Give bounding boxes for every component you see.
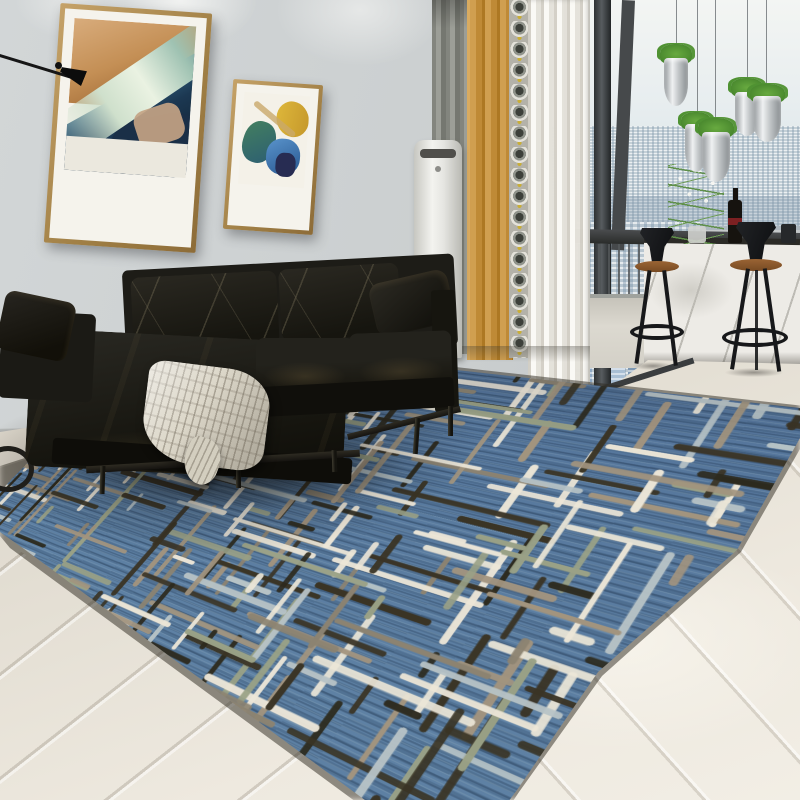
art-cream-band bbox=[64, 136, 188, 178]
wall-lamp-joint bbox=[55, 62, 62, 69]
sofa-leg bbox=[332, 450, 338, 472]
wall-art-small-print bbox=[238, 92, 310, 188]
sofa-leg bbox=[448, 406, 453, 436]
planter-cable bbox=[697, 0, 698, 126]
stool-footrest-ring bbox=[722, 328, 788, 347]
flower-vase bbox=[688, 226, 706, 243]
ac-logo bbox=[435, 166, 441, 172]
stool-leg bbox=[662, 270, 678, 366]
stool-leg bbox=[755, 270, 758, 370]
wall-art-large-print bbox=[64, 18, 196, 178]
stool-back bbox=[736, 222, 776, 262]
wall-art-small-mat bbox=[227, 83, 319, 230]
planter-cable bbox=[715, 0, 716, 132]
ac-vent bbox=[420, 149, 456, 158]
curtain-sheer bbox=[528, 0, 590, 392]
stool-seat bbox=[635, 261, 679, 272]
curtain-mustard bbox=[467, 0, 513, 360]
hanging-planter bbox=[753, 96, 781, 142]
hanging-planter bbox=[702, 132, 730, 182]
stool-leg bbox=[763, 268, 781, 372]
bar-stool-right bbox=[712, 222, 800, 382]
stool-leg bbox=[730, 268, 750, 369]
wall-art-small-frame bbox=[223, 79, 323, 235]
stool-footrest-ring bbox=[630, 324, 684, 340]
bar-stool-left bbox=[628, 228, 678, 374]
curtain-geometric-trim bbox=[509, 0, 530, 358]
stool-back bbox=[640, 228, 674, 264]
wall-art-large-frame bbox=[44, 3, 212, 253]
stool-shadow bbox=[712, 366, 796, 379]
hanging-planter bbox=[664, 58, 688, 106]
art-small-navy-blob bbox=[275, 152, 297, 177]
wall-art-large-mat bbox=[49, 8, 207, 247]
sofa-leg bbox=[100, 466, 106, 494]
stool-leg bbox=[634, 270, 651, 364]
living-room-photo bbox=[0, 0, 800, 800]
